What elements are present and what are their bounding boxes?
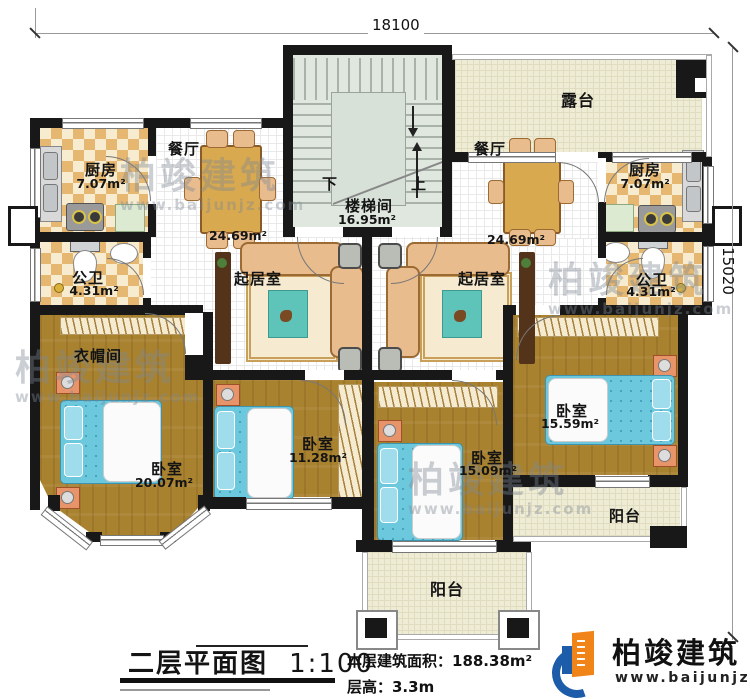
title-underline-thin [120, 689, 270, 691]
logo-name: 柏竣建筑 [612, 630, 740, 672]
wall [203, 312, 213, 508]
wall [362, 380, 374, 550]
kitchen-left-fridge [115, 204, 145, 232]
wall [445, 55, 455, 162]
plant-left [217, 258, 227, 268]
wall [330, 497, 372, 509]
label-kitchen-right-area: 7.07m² [620, 176, 669, 191]
window [703, 246, 714, 302]
door-gap [143, 258, 151, 298]
kitchen-left-sink [43, 184, 58, 212]
window [190, 118, 262, 129]
logo-icon [552, 632, 604, 690]
stove-burner [660, 212, 674, 226]
label-bedroom-sw-area: 20.07m² [135, 475, 193, 490]
logo-url: www.baijunjz.com [615, 670, 750, 686]
nightstand [653, 355, 677, 377]
sliding-door [392, 541, 497, 553]
kitchen-right-sink [686, 186, 701, 212]
label-bedroom-s2-area: 15.09m² [459, 463, 517, 478]
left-protrusion [8, 206, 38, 246]
nightstand [378, 420, 402, 442]
wall [503, 315, 513, 550]
window [62, 118, 144, 129]
wall [372, 370, 452, 380]
right-protrusion [712, 206, 742, 246]
dining-chair [259, 177, 276, 201]
label-stairwell-area: 16.95m² [338, 212, 396, 227]
terrace-parapet [706, 55, 712, 157]
plan-title: 二层平面图 1:100 [128, 643, 374, 680]
pillow [380, 487, 398, 523]
pillow [217, 452, 235, 490]
stair-down-arrowhead [408, 128, 418, 137]
wall [30, 305, 195, 315]
wall [560, 305, 598, 315]
dining-chair [488, 180, 504, 204]
duvet [412, 445, 461, 539]
coffee-decor-right [454, 310, 466, 322]
label-dining-left-area: 24.69m² [209, 228, 267, 243]
coffee-decor-left [280, 310, 292, 322]
label-bedroom-se-area: 15.59m² [541, 416, 599, 431]
pillow [64, 406, 83, 440]
sliding-door [595, 476, 650, 488]
floor-plan: 柏竣建筑 www.baijunjz.com 柏竣建筑 www.baijunjz.… [0, 0, 750, 699]
wall [678, 305, 688, 485]
wall [598, 305, 712, 315]
label-kitchen-left-area: 7.07m² [76, 176, 125, 191]
pillow [380, 448, 398, 484]
label-stair-down: 下 [322, 173, 338, 194]
label-living-right: 起居室 [458, 268, 506, 289]
label-cloakroom: 衣帽间 [74, 345, 122, 366]
label-bath-right-area: 4.31m² [626, 284, 675, 299]
wall [362, 237, 372, 380]
label-bedroom-s1-area: 11.28m² [289, 450, 347, 465]
nightstand [56, 372, 80, 394]
label-balcony-bottom: 阳台 [430, 576, 464, 600]
dimension-line-right [732, 48, 733, 640]
terrace-parapet [452, 54, 712, 60]
pillow [64, 443, 83, 477]
kitchen-left-sink [43, 152, 58, 180]
stove-burner [88, 210, 102, 224]
label-living-left: 起居室 [234, 268, 282, 289]
door-gap [185, 313, 203, 355]
floor-height-line: 层高：3.3m [347, 676, 434, 697]
window [246, 498, 332, 510]
sink-right [602, 242, 630, 263]
label-terrace: 露台 [561, 87, 595, 111]
kitchen-right-fridge [604, 204, 634, 232]
wall [503, 305, 516, 315]
bedroom-s1-wardrobe [338, 384, 364, 498]
stair-down-arrow [412, 106, 414, 128]
nightstand [216, 384, 240, 406]
wall [283, 45, 293, 237]
label-dining-right: 餐厅 [474, 138, 506, 159]
label-bath-left-area: 4.31m² [69, 283, 118, 298]
dining-chair [206, 130, 228, 148]
door-gap [556, 152, 598, 162]
logo: 柏竣建筑 www.baijunjz.com [552, 628, 750, 696]
hook-left [54, 283, 64, 293]
stove-burner [72, 210, 86, 224]
dining-table-left [200, 145, 262, 234]
logo-tower-windows [577, 640, 585, 666]
dimension-right-label: 15020 [719, 243, 737, 299]
nightstand [653, 445, 677, 467]
balcony-right-column [650, 526, 687, 548]
floor-area-line: 本层建筑面积：188.38m² [347, 650, 532, 671]
label-dining-right-area: 24.69m² [487, 232, 545, 247]
tv-cabinet-left [215, 252, 231, 364]
bay-window [100, 535, 164, 546]
dining-chair [184, 177, 201, 201]
door-gap [305, 370, 344, 380]
wall [30, 232, 148, 242]
logo-tower-blue [562, 646, 572, 674]
pillow [217, 411, 235, 449]
stair-up-arrowhead [412, 142, 422, 151]
pillow [652, 411, 671, 441]
label-stair-up: 上 [411, 173, 427, 194]
dimension-tick [727, 41, 738, 52]
label-dining-left: 餐厅 [168, 138, 200, 159]
dimension-top-label: 18100 [368, 16, 424, 34]
duvet [247, 408, 292, 498]
wall [344, 370, 372, 380]
wall [283, 45, 452, 55]
balcony-column [507, 618, 529, 638]
wall [356, 540, 392, 552]
pillow [652, 379, 671, 409]
wall [648, 475, 688, 487]
hall-right-floor [503, 238, 598, 305]
title-underline-thick [120, 678, 335, 683]
door-gap [598, 258, 606, 298]
label-balcony-right: 阳台 [609, 505, 641, 526]
door-gap [452, 370, 496, 380]
balcony-column [365, 618, 387, 638]
wall [598, 232, 712, 242]
hook-right [676, 283, 686, 293]
window [30, 248, 41, 302]
plant-right [521, 258, 531, 268]
stove-burner [644, 212, 658, 226]
door-gap [392, 227, 440, 237]
dining-table-right [503, 152, 561, 234]
door-gap [295, 227, 343, 237]
plan-title-text: 二层平面图 [128, 649, 268, 679]
dining-chair [233, 130, 255, 148]
